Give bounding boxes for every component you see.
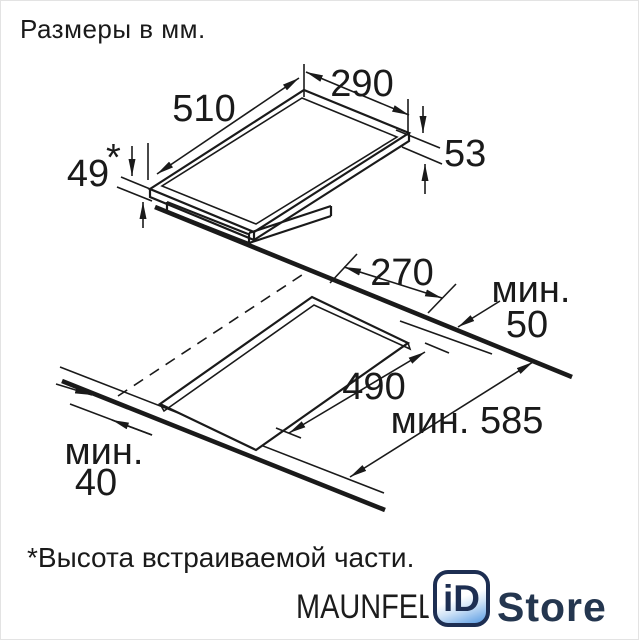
dim-49-asterisk: * (106, 137, 121, 179)
id-store-logo-monogram: iD (443, 580, 480, 617)
dim-270-label: 270 (370, 252, 433, 294)
dim-49-label: 49 (67, 153, 109, 195)
dim-min585-label: мин. 585 (391, 400, 544, 442)
dim-min40-value: 40 (75, 462, 117, 504)
product-dimensions-image: { "header": { "title": "Размеры в мм." }… (0, 0, 639, 640)
dim-53-label: 53 (444, 133, 486, 175)
dim-290-label: 290 (330, 63, 393, 105)
dim-510-label: 510 (172, 88, 235, 130)
id-store-logo-text: Store (497, 584, 607, 631)
dim-min50-value: 50 (506, 304, 548, 346)
id-store-logo-icon: iD (433, 570, 490, 627)
brand-name: MAUNFELD (296, 588, 455, 627)
footnote: *Высота встраиваемой части. (27, 542, 414, 574)
